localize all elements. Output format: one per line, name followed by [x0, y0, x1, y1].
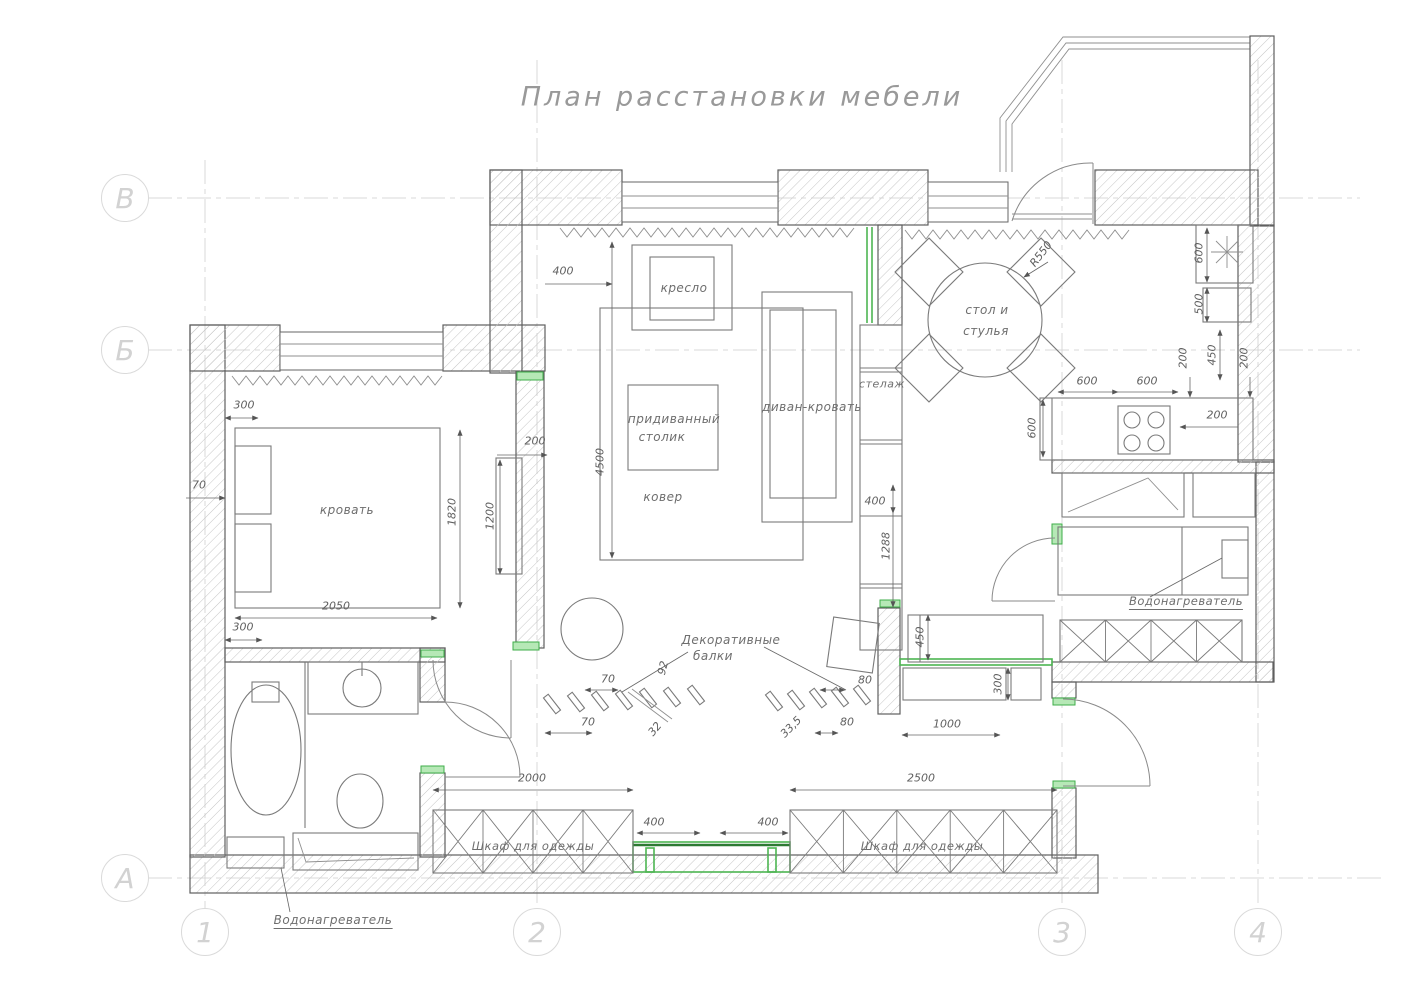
shoe-shelf — [903, 668, 1006, 700]
shoe-cabinet — [1011, 668, 1041, 700]
sofa-bed — [762, 292, 852, 522]
bathtub — [231, 685, 301, 815]
bathroom-door — [445, 702, 520, 777]
beams-leader-left — [622, 652, 688, 692]
toilet — [337, 774, 383, 828]
beams-leader-right — [764, 647, 846, 690]
stove — [1118, 406, 1170, 454]
storage-door — [992, 538, 1055, 601]
furniture — [227, 225, 1255, 873]
waterheater-right-leader — [1150, 558, 1222, 597]
bed — [235, 428, 440, 608]
armchair — [632, 245, 732, 330]
storage-cabinet-x — [1060, 620, 1242, 662]
bathroom-fixtures — [227, 662, 418, 870]
entry-door — [1063, 699, 1150, 786]
pouf — [561, 598, 623, 660]
sink-counter — [308, 662, 418, 714]
kitchen-counter — [1040, 398, 1253, 460]
window-kitchen — [928, 182, 1008, 222]
floor-plan-canvas: План расстановки мебели креслопридиванны… — [0, 0, 1414, 1000]
storage-closet — [1058, 527, 1248, 595]
window-bedroom — [280, 332, 443, 370]
dining-table-chairs — [895, 238, 1075, 402]
water-heater-right — [1222, 540, 1248, 578]
laundry-appliances — [1062, 473, 1255, 517]
walls — [190, 36, 1274, 893]
tilted-chair — [827, 617, 880, 673]
dimension-lines — [186, 228, 1250, 912]
balcony-door — [1012, 163, 1093, 224]
pillow — [235, 524, 271, 592]
pillow — [235, 446, 271, 514]
floor-plan-drawing — [0, 0, 1414, 1000]
decor-beams — [543, 685, 870, 722]
side-table — [628, 385, 718, 470]
r550-leader — [1024, 262, 1048, 277]
window-living — [622, 182, 778, 222]
